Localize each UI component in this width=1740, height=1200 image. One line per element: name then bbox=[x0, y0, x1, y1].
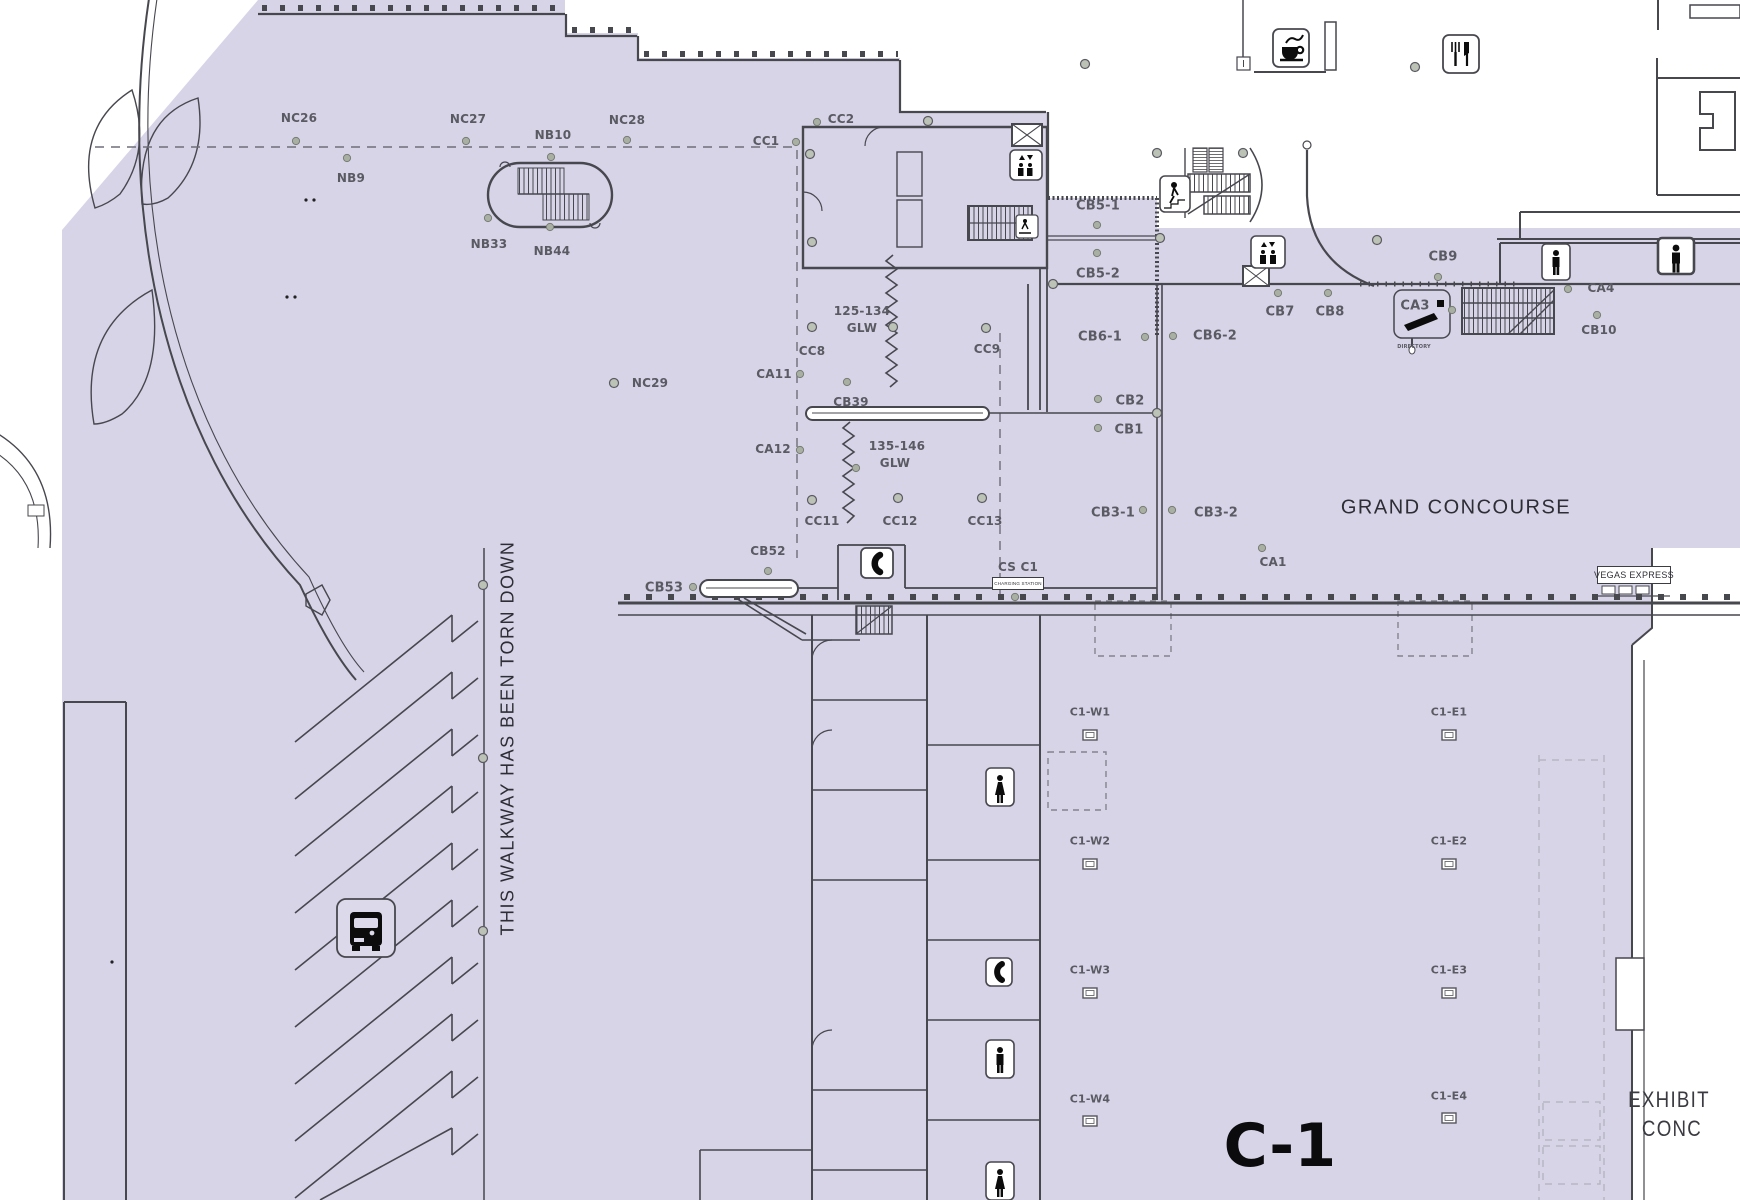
floor-region bbox=[62, 0, 1740, 1200]
womens-restroom-icon bbox=[986, 768, 1014, 806]
womens-restroom-icon bbox=[986, 1162, 1014, 1200]
phone-icon bbox=[861, 548, 893, 578]
floorplan-canvas bbox=[0, 0, 1740, 1200]
charging-station-sign: CHARGING STATION bbox=[992, 577, 1044, 590]
column-marker-icon bbox=[1237, 57, 1250, 70]
vegas-express-sign: VEGAS EXPRESS bbox=[1597, 566, 1671, 584]
floorplan-page: VEGAS EXPRESS CHARGING STATION NC26NC27N… bbox=[0, 0, 1740, 1200]
escalator-bank-icon bbox=[1462, 288, 1554, 334]
service-stairs-icon bbox=[856, 606, 892, 634]
bus-icon bbox=[337, 899, 395, 957]
restaurant-icon bbox=[1443, 35, 1479, 73]
stairs-icon bbox=[968, 206, 1038, 240]
mens-restroom-icon bbox=[1542, 244, 1570, 280]
stairs-up-icon bbox=[1160, 148, 1262, 222]
mens-restroom-icon bbox=[986, 1040, 1014, 1078]
coffee-icon bbox=[1273, 29, 1309, 67]
mens-restroom-icon bbox=[1658, 238, 1694, 274]
phone-icon bbox=[986, 958, 1012, 986]
